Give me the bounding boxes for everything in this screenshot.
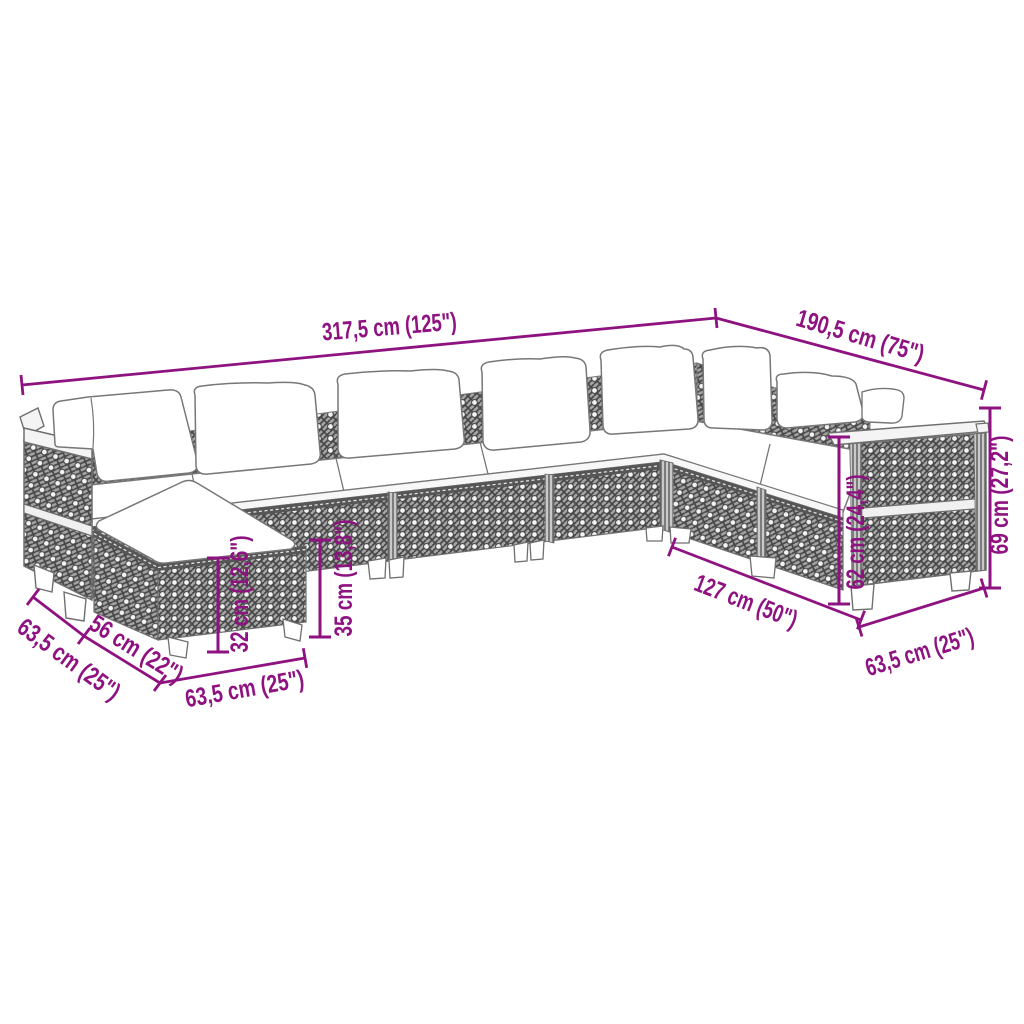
svg-text:35 cm (13,8"): 35 cm (13,8") [330, 520, 358, 637]
svg-text:32 cm (12,6"): 32 cm (12,6") [226, 536, 254, 653]
svg-text:69 cm (27,2"): 69 cm (27,2") [986, 436, 1014, 555]
svg-text:62 cm (24,4"): 62 cm (24,4") [842, 475, 870, 590]
